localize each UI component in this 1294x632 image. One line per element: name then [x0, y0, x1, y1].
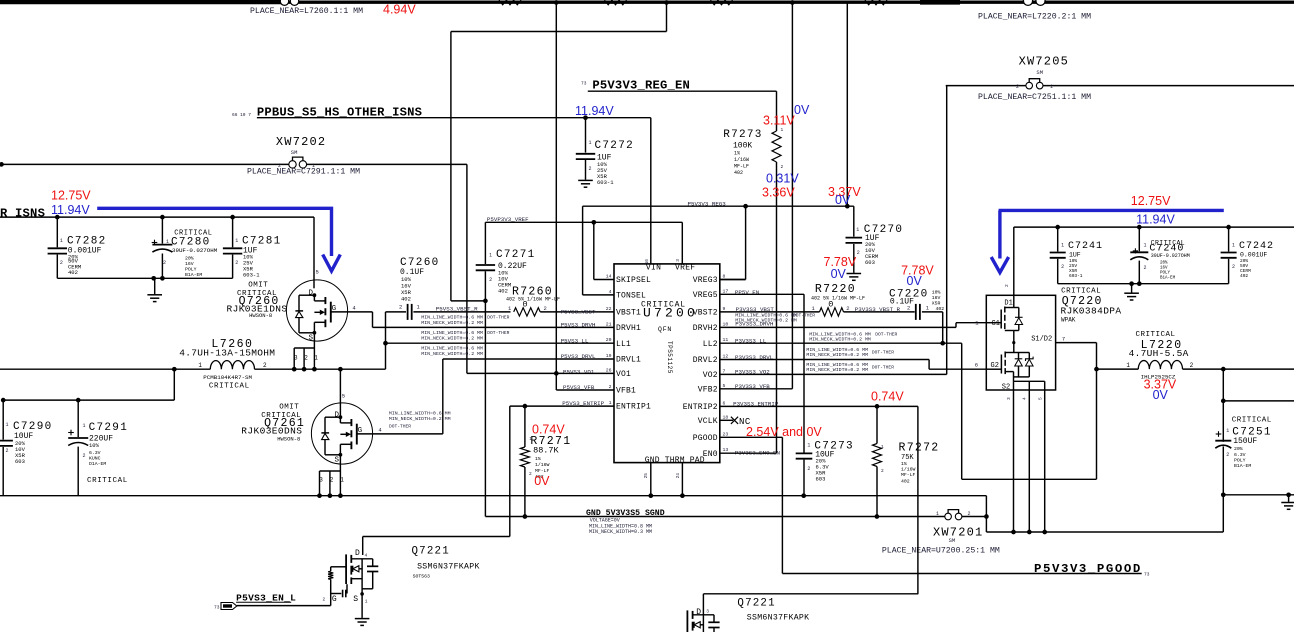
svg-text:MIN_LINE_WIDTH=0.6 MM: MIN_LINE_WIDTH=0.6 MM — [735, 312, 797, 318]
svg-text:B1A-EM: B1A-EM — [1160, 277, 1176, 281]
svg-text:2: 2 — [1190, 362, 1194, 369]
svg-text:0V: 0V — [907, 274, 923, 288]
svg-text:MIN_LINE_WIDTH=0.6 MM: MIN_LINE_WIDTH=0.6 MM — [421, 330, 483, 336]
svg-text:2: 2 — [304, 355, 308, 362]
svg-text:4: 4 — [365, 553, 368, 559]
svg-text:TPS51125: TPS51125 — [666, 341, 673, 374]
svg-text:MIN_LINE_WIDTH=0.6 MM: MIN_LINE_WIDTH=0.6 MM — [421, 346, 483, 352]
svg-text:3: 3 — [706, 609, 709, 615]
svg-text:19: 19 — [606, 353, 612, 359]
svg-text:73: 73 — [214, 605, 220, 611]
svg-text:SSM6N37FKAPK: SSM6N37FKAPK — [747, 614, 810, 623]
svg-text:26: 26 — [606, 367, 612, 373]
svg-text:3.36V: 3.36V — [762, 186, 795, 200]
svg-text:MIN_LINE_WIDTH=0.6 MM: MIN_LINE_WIDTH=0.6 MM — [806, 347, 868, 353]
svg-text:2: 2 — [857, 250, 860, 256]
svg-text:OMIT: OMIT — [248, 282, 268, 290]
svg-text:ENTRIP2: ENTRIP2 — [683, 403, 718, 412]
svg-text:DOT-THER: DOT-THER — [487, 330, 509, 336]
svg-text:P3V3S3_VBST: P3V3S3_VBST — [736, 306, 775, 313]
svg-text:DRVH2: DRVH2 — [693, 324, 718, 333]
svg-text:402 5% 1/16W MF-LF: 402 5% 1/16W MF-LF — [506, 297, 560, 303]
svg-text:P5VS3_VO1: P5VS3_VO1 — [563, 368, 595, 375]
svg-text:VREG3: VREG3 — [693, 276, 718, 285]
svg-text:VIN: VIN — [646, 264, 661, 273]
svg-text:603: 603 — [15, 458, 25, 465]
svg-text:1: 1 — [6, 422, 9, 428]
svg-text:VCLK: VCLK — [698, 417, 718, 426]
svg-text:MIN_NECK_WIDTH=0.2 MM: MIN_NECK_WIDTH=0.2 MM — [809, 337, 871, 343]
svg-text:VREF: VREF — [675, 264, 695, 273]
svg-text:2: 2 — [1226, 452, 1229, 458]
svg-text:2: 2 — [83, 453, 86, 459]
svg-text:PCMB104K4R7-SM: PCMB104K4R7-SM — [203, 374, 252, 381]
svg-text:2: 2 — [330, 477, 334, 484]
svg-text:0V: 0V — [1153, 388, 1169, 402]
svg-text:1: 1 — [60, 238, 63, 244]
svg-text:DOT-THER: DOT-THER — [872, 365, 894, 371]
svg-text:D1A-EM: D1A-EM — [89, 461, 106, 467]
svg-text:MIN_NECK_WIDTH=0.2 MM: MIN_NECK_WIDTH=0.2 MM — [421, 351, 483, 357]
svg-text:1: 1 — [340, 477, 344, 484]
svg-text:24: 24 — [675, 473, 681, 479]
svg-text:75K: 75K — [901, 454, 914, 462]
svg-text:XW7205: XW7205 — [1019, 55, 1069, 69]
svg-text:2: 2 — [399, 304, 402, 311]
svg-text:1: 1 — [856, 227, 859, 233]
svg-text:20: 20 — [606, 337, 612, 343]
svg-text:0: 0 — [828, 300, 833, 310]
svg-text:6: 6 — [723, 400, 726, 406]
svg-text:11.94V: 11.94V — [575, 104, 614, 118]
svg-text:S2: S2 — [1002, 384, 1010, 392]
svg-text:VFB2: VFB2 — [698, 385, 718, 394]
svg-text:5: 5 — [1038, 397, 1044, 400]
svg-text:1: 1 — [198, 362, 202, 369]
svg-text:DRVL1: DRVL1 — [616, 356, 641, 365]
svg-text:16V: 16V — [185, 261, 194, 267]
svg-text:1%: 1% — [734, 151, 740, 157]
svg-text:2: 2 — [881, 468, 884, 474]
svg-text:KUNC: KUNC — [89, 456, 101, 462]
svg-text:S: S — [308, 335, 313, 343]
svg-text:POLY: POLY — [1234, 458, 1246, 464]
svg-text:ENTRIP1: ENTRIP1 — [616, 403, 651, 412]
svg-text:SM: SM — [291, 149, 298, 156]
svg-text:1: 1 — [589, 140, 592, 146]
svg-text:39UF-0.027OHM: 39UF-0.027OHM — [172, 247, 218, 254]
svg-text:U7200: U7200 — [643, 306, 698, 321]
svg-text:402: 402 — [1240, 273, 1248, 279]
svg-text:20%: 20% — [185, 256, 194, 262]
svg-text:D: D — [308, 290, 313, 298]
svg-text:9: 9 — [723, 306, 726, 312]
svg-text:1: 1 — [314, 355, 318, 362]
svg-text:1/16W: 1/16W — [734, 157, 749, 163]
svg-text:402: 402 — [901, 479, 910, 485]
svg-text:P3V3S3_DRVH: P3V3S3_DRVH — [735, 321, 774, 328]
svg-text:PGOOD: PGOOD — [693, 434, 718, 443]
svg-text:0V: 0V — [835, 193, 851, 207]
svg-text:G1: G1 — [992, 320, 1000, 328]
svg-text:0.1UF: 0.1UF — [890, 297, 914, 306]
svg-text:2: 2 — [907, 305, 910, 312]
svg-text:B1A-EM: B1A-EM — [1234, 463, 1251, 469]
svg-text:1: 1 — [1226, 428, 1229, 434]
svg-text:3: 3 — [1006, 397, 1012, 400]
svg-text:5: 5 — [723, 383, 726, 389]
svg-text:2: 2 — [1144, 265, 1147, 271]
svg-text:7: 7 — [1062, 336, 1065, 343]
svg-text:CRITICAL: CRITICAL — [209, 382, 250, 390]
svg-text:2: 2 — [489, 277, 492, 283]
svg-text:MIN_NECK_WIDTH=0.2 MM: MIN_NECK_WIDTH=0.2 MM — [806, 367, 868, 373]
svg-text:R7220: R7220 — [815, 283, 856, 296]
svg-text:C7291: C7291 — [89, 422, 129, 434]
svg-text:HWSON-8: HWSON-8 — [249, 312, 272, 319]
svg-text:2: 2 — [60, 260, 63, 266]
svg-text:1: 1 — [1144, 243, 1147, 249]
svg-text:1: 1 — [1050, 84, 1053, 90]
svg-text:SM: SM — [1036, 69, 1043, 76]
svg-text:PP5V_EN: PP5V_EN — [735, 289, 760, 296]
svg-text:MIN_LINE_WIDTH=0.6 MM: MIN_LINE_WIDTH=0.6 MM — [809, 331, 871, 337]
svg-text:88.7K: 88.7K — [533, 446, 559, 456]
svg-text:MIN_NECK_WIDTH=0.2 MM: MIN_NECK_WIDTH=0.2 MM — [421, 320, 483, 326]
svg-text:0V: 0V — [534, 474, 550, 488]
svg-text:20%: 20% — [1234, 446, 1243, 452]
svg-text:VFB1: VFB1 — [616, 387, 636, 396]
svg-text:3.11V: 3.11V — [763, 114, 795, 128]
svg-text:QFN: QFN — [658, 326, 672, 333]
svg-text:10%: 10% — [89, 442, 100, 449]
svg-text:C7242: C7242 — [1239, 241, 1274, 252]
svg-text:2: 2 — [1004, 284, 1010, 287]
svg-text:12.75V: 12.75V — [1131, 194, 1171, 208]
svg-text:100K: 100K — [733, 142, 752, 151]
svg-text:CRITICAL: CRITICAL — [1136, 331, 1176, 339]
svg-text:PLACE_NEAR=C7291.1:1 MM: PLACE_NEAR=C7291.1:1 MM — [247, 168, 360, 177]
svg-text:PLACE_NEAR=C7251.1:1 MM: PLACE_NEAR=C7251.1:1 MM — [978, 93, 1091, 102]
svg-text:402: 402 — [401, 296, 411, 303]
svg-text:1: 1 — [166, 239, 169, 245]
svg-text:P5V3V3_REG3: P5V3V3_REG3 — [688, 200, 727, 207]
svg-text:1/16W: 1/16W — [535, 462, 550, 468]
svg-text:PLACE_NEAR=U7200.25:1 MM: PLACE_NEAR=U7200.25:1 MM — [882, 547, 1000, 556]
svg-text:23: 23 — [723, 431, 729, 437]
svg-text:10: 10 — [723, 321, 729, 327]
svg-text:2: 2 — [322, 597, 325, 603]
svg-text:2: 2 — [781, 164, 784, 170]
svg-text:DOT-THER: DOT-THER — [389, 424, 411, 430]
svg-text:18: 18 — [723, 414, 729, 420]
svg-text:DRVH1: DRVH1 — [616, 324, 641, 333]
svg-text:402: 402 — [936, 306, 945, 312]
svg-text:2: 2 — [1016, 84, 1019, 90]
svg-text:3: 3 — [675, 259, 681, 262]
svg-text:LL1: LL1 — [616, 340, 631, 349]
svg-text:1: 1 — [1232, 243, 1235, 249]
svg-text:2: 2 — [163, 260, 166, 266]
svg-text:16V: 16V — [932, 295, 941, 301]
svg-text:TONSEL: TONSEL — [616, 292, 646, 301]
svg-text:S: S — [353, 595, 358, 604]
svg-text:0V: 0V — [831, 267, 847, 281]
svg-text:2: 2 — [6, 448, 9, 454]
svg-text:402 5% 1/16W MF-LF: 402 5% 1/16W MF-LF — [811, 296, 865, 302]
svg-text:DOT-THER: DOT-THER — [793, 312, 815, 318]
svg-text:73: 73 — [581, 81, 587, 87]
svg-text:11: 11 — [723, 337, 729, 343]
svg-text:1: 1 — [83, 423, 86, 429]
svg-text:21: 21 — [606, 321, 612, 327]
svg-text:MIN_LINE_WIDTH=0.6 MM: MIN_LINE_WIDTH=0.6 MM — [421, 315, 483, 321]
svg-text:P5VS3_LL: P5VS3_LL — [561, 337, 589, 344]
svg-text:XW7201: XW7201 — [933, 526, 983, 540]
svg-text:1: 1 — [489, 253, 492, 259]
svg-text:POLY: POLY — [1160, 272, 1171, 276]
svg-text:POLY: POLY — [185, 267, 197, 273]
svg-text:P5VS3_VBST_R: P5VS3_VBST_R — [436, 306, 478, 313]
svg-text:17: 17 — [723, 288, 729, 294]
svg-text:25: 25 — [643, 473, 649, 479]
svg-text:2: 2 — [1232, 264, 1235, 270]
svg-text:39UF-0.027OHM: 39UF-0.027OHM — [1151, 253, 1190, 259]
svg-text:2: 2 — [235, 260, 238, 266]
svg-text:603-1: 603-1 — [243, 272, 260, 279]
svg-text:S1/D2: S1/D2 — [1031, 336, 1052, 344]
svg-text:C7271: C7271 — [496, 249, 536, 261]
svg-text:1: 1 — [936, 511, 939, 517]
svg-text:4.94V: 4.94V — [383, 3, 416, 17]
svg-text:603-1: 603-1 — [597, 179, 614, 186]
svg-text:VREG5: VREG5 — [693, 291, 718, 300]
svg-text:P5VS3_VBST: P5VS3_VBST — [561, 308, 596, 315]
svg-text:WPAK: WPAK — [1061, 317, 1076, 324]
svg-text:150UF: 150UF — [1233, 437, 1257, 446]
svg-text:6.3V: 6.3V — [1234, 452, 1246, 458]
svg-text:0.74V: 0.74V — [532, 423, 565, 437]
svg-text:D: D — [355, 549, 360, 558]
svg-text:MIN_LINE_WIDTH=0.6 MM: MIN_LINE_WIDTH=0.6 MM — [389, 411, 451, 417]
svg-text:1UF: 1UF — [1069, 252, 1081, 259]
svg-text:R_ISNS: R_ISNS — [0, 207, 45, 221]
svg-text:P5VS3_DRVH: P5VS3_DRVH — [561, 322, 596, 329]
svg-text:14: 14 — [606, 274, 612, 280]
svg-text:0.31V: 0.31V — [766, 172, 799, 186]
svg-text:SOT563: SOT563 — [413, 574, 430, 580]
svg-text:VBST2: VBST2 — [693, 309, 718, 318]
svg-text:G: G — [332, 595, 337, 604]
svg-text:402: 402 — [68, 269, 78, 276]
svg-text:LL2: LL2 — [703, 340, 718, 349]
svg-text:12.75V: 12.75V — [51, 189, 91, 203]
svg-text:1%: 1% — [535, 456, 541, 462]
svg-text:DRVL2: DRVL2 — [693, 356, 718, 365]
svg-text:DOT-THER: DOT-THER — [875, 331, 897, 337]
svg-text:16V: 16V — [1160, 267, 1168, 271]
svg-text:12: 12 — [723, 354, 729, 360]
svg-text:2: 2 — [1061, 264, 1064, 270]
svg-text:PLACE_NEAR=L7220.2:1 MM: PLACE_NEAR=L7220.2:1 MM — [978, 13, 1091, 22]
svg-text:1: 1 — [781, 127, 784, 133]
svg-text:2: 2 — [589, 166, 592, 172]
svg-text:5: 5 — [342, 393, 345, 400]
svg-text:4.7UH-5.5A: 4.7UH-5.5A — [1129, 348, 1189, 359]
svg-text:SSM6N37FKAPK: SSM6N37FKAPK — [417, 563, 480, 572]
svg-text:6: 6 — [975, 362, 978, 369]
svg-text:D: D — [334, 412, 339, 420]
svg-text:VO2: VO2 — [703, 371, 718, 380]
svg-text:P3V3S3_VBST_R: P3V3S3_VBST_R — [855, 306, 901, 313]
svg-text:P5V3V3_REG_EN: P5V3V3_REG_EN — [592, 79, 690, 93]
svg-text:MIN_NECK_WIDTH=0.3 MM: MIN_NECK_WIDTH=0.3 MM — [589, 529, 652, 535]
svg-text:2.54V and 0V: 2.54V and 0V — [746, 425, 822, 439]
svg-text:1: 1 — [1061, 243, 1064, 249]
svg-text:1: 1 — [609, 400, 612, 406]
svg-text:4: 4 — [609, 289, 612, 295]
svg-text:2: 2 — [609, 384, 612, 390]
svg-text:Q7221: Q7221 — [412, 546, 450, 558]
svg-text:8: 8 — [723, 274, 726, 280]
svg-text:0.001UF: 0.001UF — [1240, 252, 1267, 259]
svg-text:2: 2 — [544, 305, 547, 312]
svg-text:SM: SM — [949, 537, 956, 544]
svg-text:1: 1 — [365, 599, 368, 605]
svg-text:0V: 0V — [794, 103, 810, 117]
svg-text:402: 402 — [734, 170, 743, 176]
svg-text:VBST1: VBST1 — [616, 309, 641, 318]
svg-text:G2: G2 — [991, 362, 999, 370]
svg-text:D: D — [696, 608, 701, 617]
svg-text:1: 1 — [235, 238, 238, 244]
svg-text:3: 3 — [319, 477, 323, 484]
svg-text:MIN_LINE_WIDTH=0.6 MM: MIN_LINE_WIDTH=0.6 MM — [806, 362, 868, 368]
svg-text:13: 13 — [723, 447, 729, 453]
svg-text:X5R: X5R — [932, 301, 941, 307]
svg-text:11.94V: 11.94V — [1136, 213, 1175, 227]
svg-text:D1: D1 — [1004, 300, 1012, 308]
svg-text:1: 1 — [807, 443, 810, 449]
svg-text:XW7202: XW7202 — [276, 135, 326, 149]
svg-text:6.3V: 6.3V — [89, 450, 101, 456]
svg-text:PLACE_NEAR=L7260.1:1 MM: PLACE_NEAR=L7260.1:1 MM — [250, 7, 363, 16]
svg-text:2: 2 — [968, 511, 971, 517]
svg-text:1: 1 — [881, 444, 884, 450]
svg-text:1%: 1% — [901, 461, 907, 467]
svg-text:DOT-THER: DOT-THER — [872, 350, 894, 356]
svg-text:MIN_NECK_WIDTH=0.2 MM: MIN_NECK_WIDTH=0.2 MM — [389, 416, 451, 422]
svg-text:EN0: EN0 — [703, 450, 718, 459]
svg-text:C7272: C7272 — [595, 140, 635, 152]
svg-text:402: 402 — [498, 288, 508, 295]
svg-text:HWSON-8: HWSON-8 — [277, 436, 300, 443]
svg-text:22: 22 — [606, 306, 612, 312]
svg-text:S: S — [334, 457, 339, 465]
svg-text:0.74V: 0.74V — [871, 390, 904, 404]
svg-text:1: 1 — [1126, 362, 1130, 369]
svg-text:2: 2 — [263, 362, 267, 369]
svg-text:CRITICAL: CRITICAL — [87, 477, 128, 485]
svg-text:P5V3V3_PGOOD: P5V3V3_PGOOD — [1034, 562, 1142, 576]
svg-text:3: 3 — [294, 355, 298, 362]
svg-text:20%: 20% — [1160, 262, 1168, 266]
svg-text:DOT-THER: DOT-THER — [487, 315, 509, 321]
svg-text:MIN_NECK_WIDTH=0.2 MM: MIN_NECK_WIDTH=0.2 MM — [806, 352, 868, 358]
svg-text:2: 2 — [807, 466, 810, 472]
svg-text:MF-LF: MF-LF — [734, 164, 749, 170]
svg-text:4: 4 — [1022, 397, 1028, 400]
svg-text:CRITICAL: CRITICAL — [1232, 417, 1272, 425]
svg-text:R7272: R7272 — [899, 442, 940, 455]
svg-text:VO1: VO1 — [616, 370, 631, 379]
svg-text:2: 2 — [846, 305, 849, 312]
svg-text:R7273: R7273 — [723, 129, 763, 141]
svg-text:Q7221: Q7221 — [737, 598, 775, 610]
svg-text:SKIPSEL: SKIPSEL — [616, 276, 651, 285]
svg-text:C7241: C7241 — [1068, 241, 1103, 252]
svg-text:7: 7 — [723, 368, 726, 374]
svg-text:73: 73 — [1144, 572, 1150, 578]
svg-text:GND THRM_PAD: GND THRM_PAD — [645, 456, 705, 465]
svg-text:5: 5 — [316, 269, 319, 276]
svg-text:MIN_NECK_WIDTH=0.2 MM: MIN_NECK_WIDTH=0.2 MM — [421, 336, 483, 342]
svg-text:B1A-EM: B1A-EM — [185, 272, 202, 278]
svg-text:4.7UH-13A-15MOHM: 4.7UH-13A-15MOHM — [179, 348, 275, 359]
svg-text:2: 2 — [529, 471, 532, 477]
svg-text:66 10 7: 66 10 7 — [232, 112, 251, 118]
svg-text:MF-LF: MF-LF — [901, 472, 916, 478]
svg-text:10%: 10% — [932, 290, 941, 296]
svg-text:603: 603 — [816, 476, 826, 483]
svg-text:RJK0384DPA: RJK0384DPA — [1061, 306, 1122, 317]
svg-text:603: 603 — [865, 259, 875, 266]
svg-text:OMIT: OMIT — [279, 404, 299, 412]
svg-text:1/16W: 1/16W — [901, 467, 916, 473]
svg-text:603-1: 603-1 — [1069, 273, 1083, 279]
